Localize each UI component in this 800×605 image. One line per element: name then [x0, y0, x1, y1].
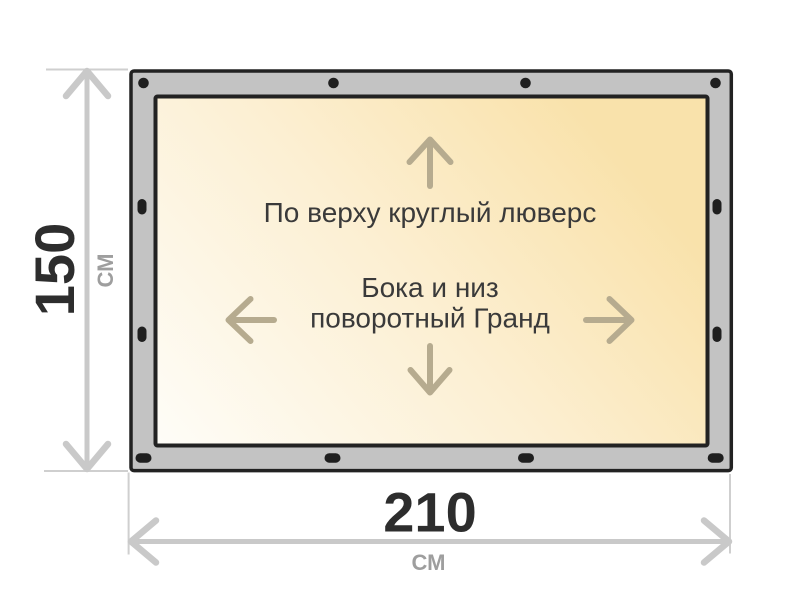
svg-text:СМ: СМ: [93, 254, 118, 288]
svg-text:Бока и низ: Бока и низ: [361, 272, 499, 303]
svg-text:210: 210: [383, 481, 476, 544]
svg-text:СМ: СМ: [412, 550, 446, 575]
svg-text:поворотный Гранд: поворотный Гранд: [310, 303, 550, 334]
svg-text:150: 150: [23, 223, 86, 316]
svg-text:По верху круглый люверс: По верху круглый люверс: [264, 197, 597, 228]
